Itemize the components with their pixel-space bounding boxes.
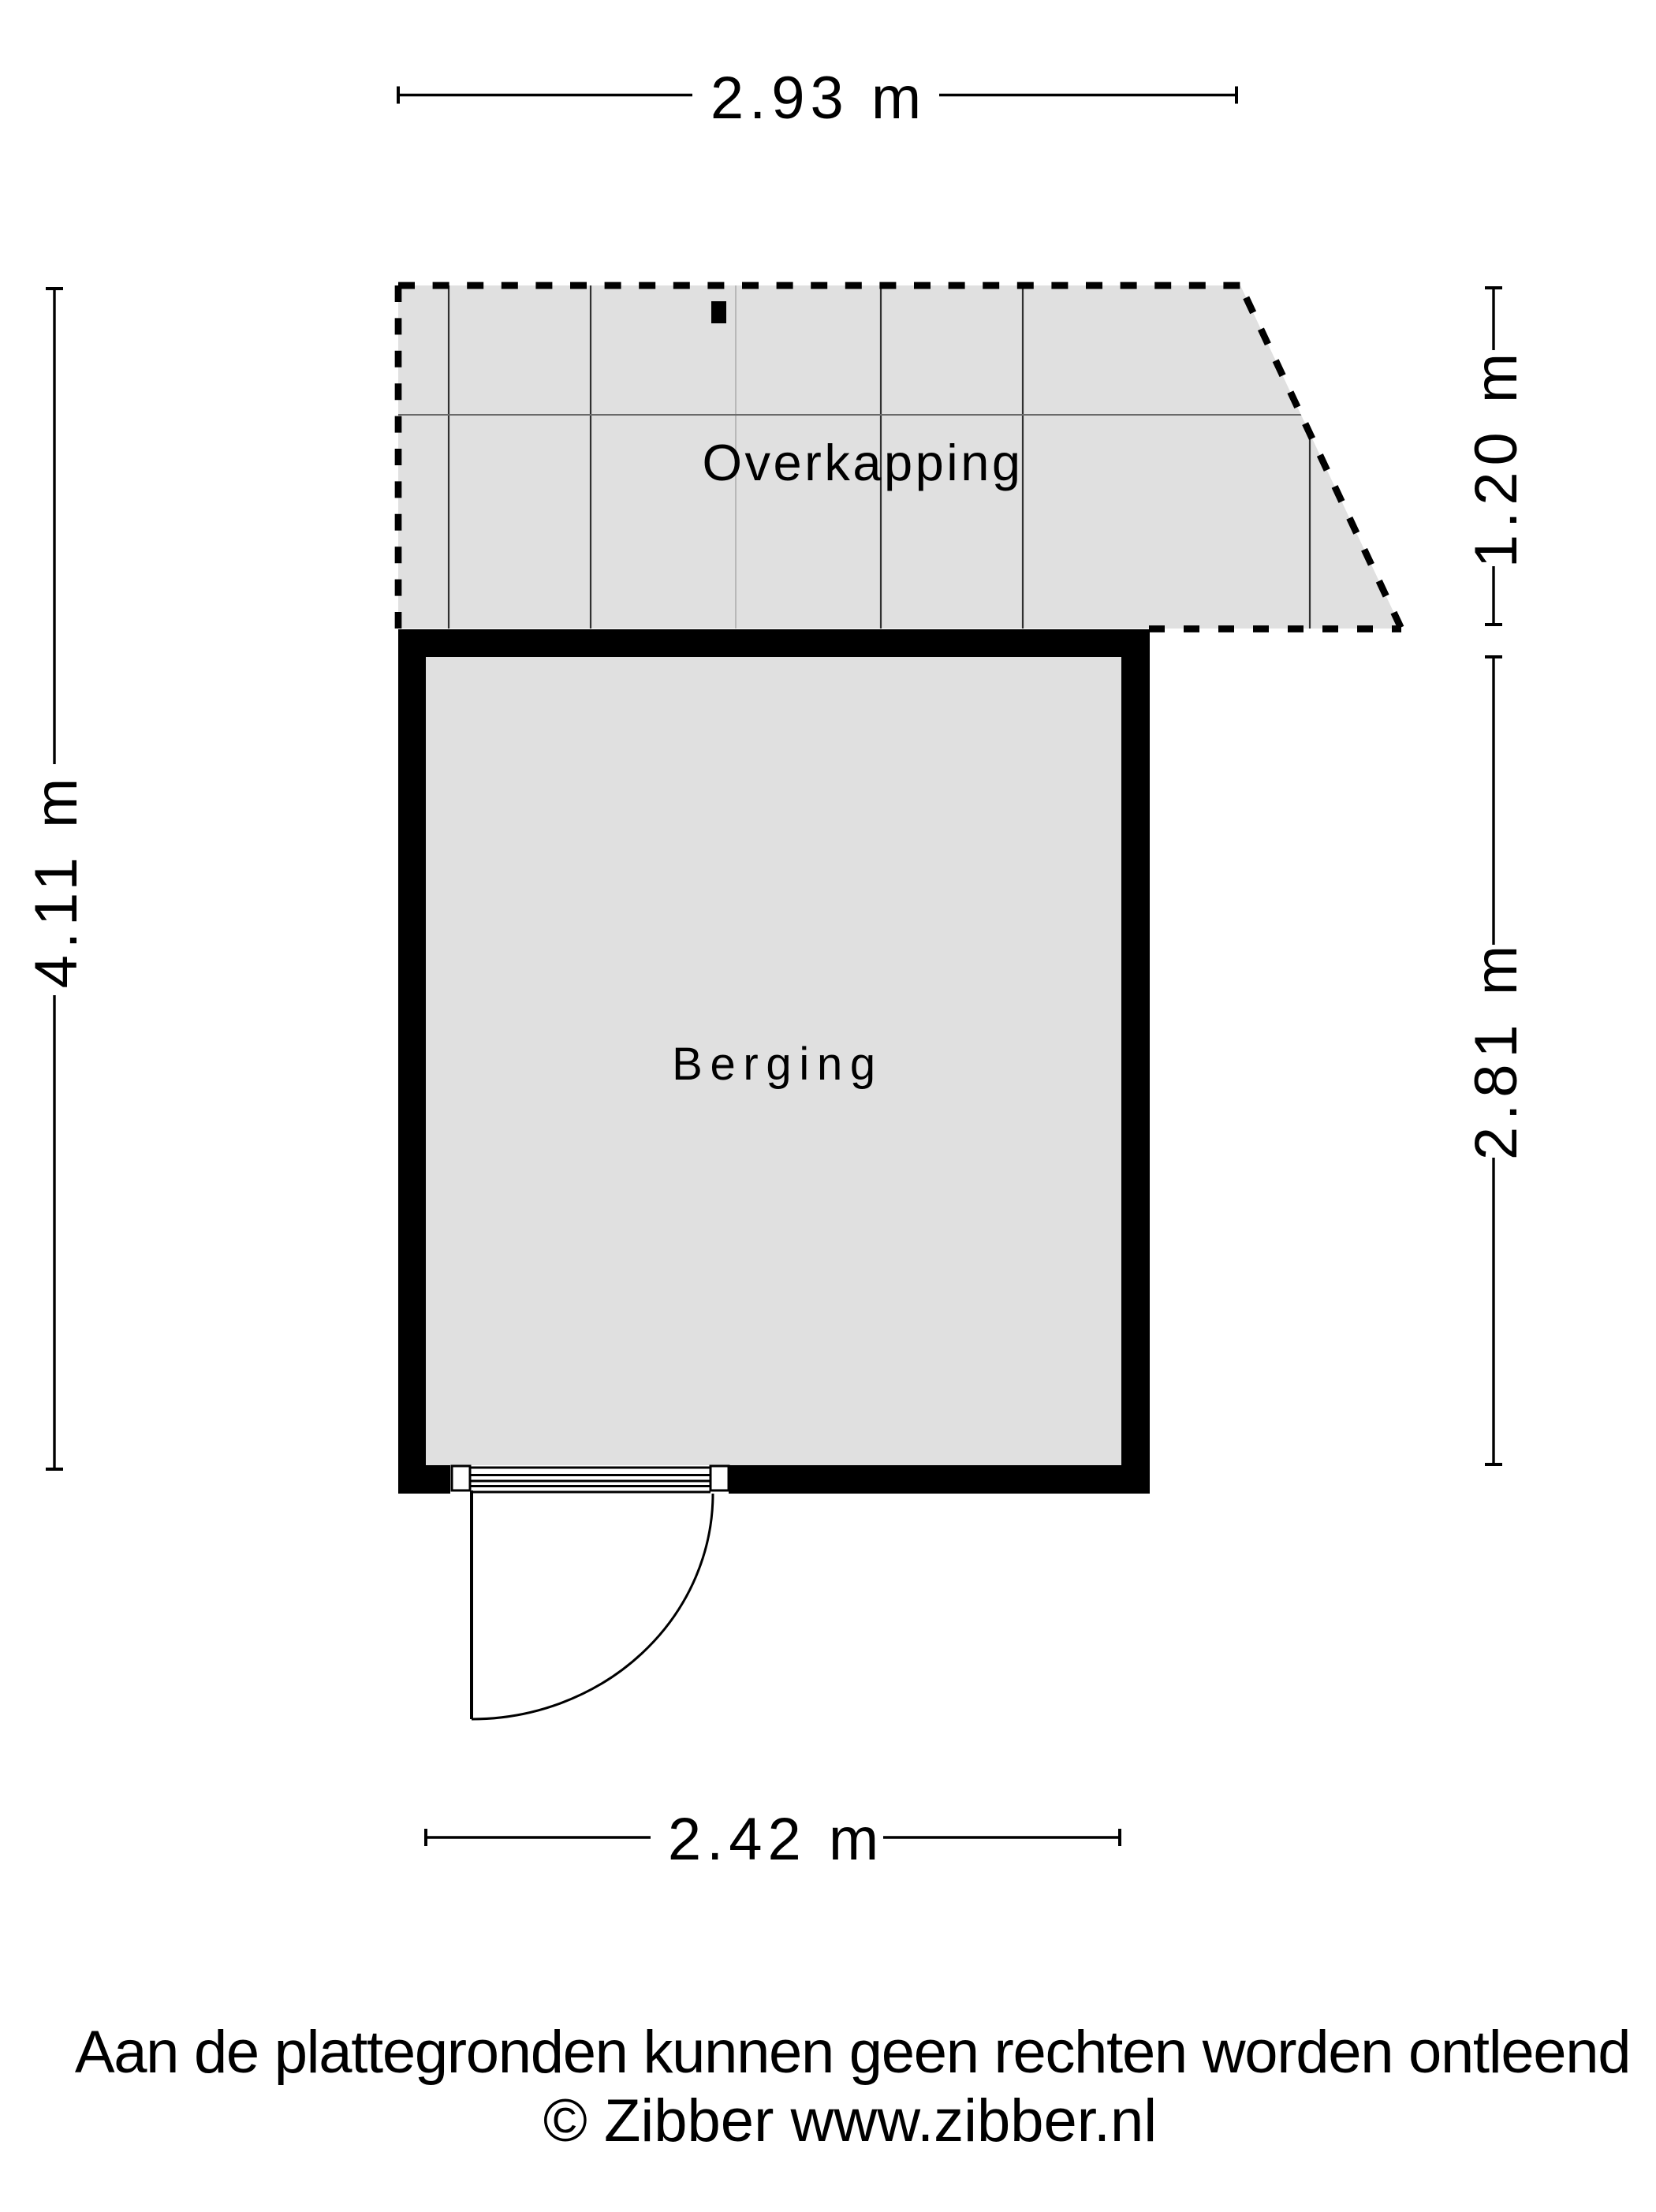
svg-text:© Zibber www.zibber.nl: © Zibber www.zibber.nl xyxy=(543,2087,1157,2154)
svg-text:2.42 m: 2.42 m xyxy=(668,1806,884,1873)
svg-text:Berging: Berging xyxy=(672,1039,883,1090)
svg-text:1.20 m: 1.20 m xyxy=(1463,347,1530,568)
svg-text:Overkapping: Overkapping xyxy=(702,434,1023,491)
svg-text:2.93 m: 2.93 m xyxy=(711,65,927,132)
svg-text:4.11 m: 4.11 m xyxy=(23,772,90,989)
svg-text:Aan de plattegronden kunnen ge: Aan de plattegronden kunnen geen rechten… xyxy=(75,2019,1630,2086)
svg-text:2.81 m: 2.81 m xyxy=(1463,939,1530,1160)
